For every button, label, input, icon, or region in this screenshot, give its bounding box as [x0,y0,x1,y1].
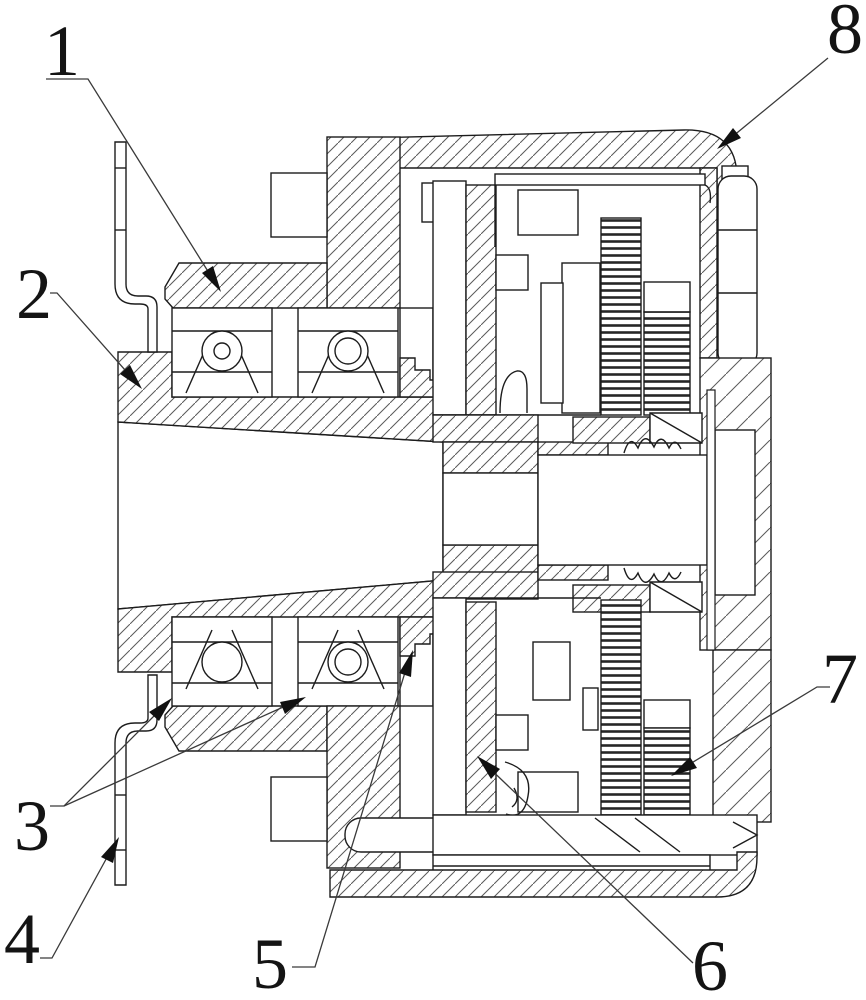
callout-1: 1 [44,11,221,292]
callout-8: 8 [717,0,863,149]
sun-gear-top [601,218,641,415]
stator-leg [466,602,496,812]
axle-boss [715,430,755,595]
lead-wire-top [500,371,527,413]
hub-end-wall-top [433,415,538,442]
cavity-left-wall [433,598,466,815]
callout-label-7: 7 [822,639,858,719]
shaft-body [538,455,707,565]
shaft-step [707,390,715,650]
end-cover [718,176,757,366]
bearing-ball [202,642,242,682]
motor-cavity-bottom [433,598,690,815]
carrier-block [562,263,600,413]
callout-label-2: 2 [16,254,52,334]
shaft-neck [443,473,538,545]
lock-nut-bottom [165,706,327,751]
callout-label-8: 8 [827,0,863,69]
shaft-collar-top [443,442,538,473]
spring-washer-bottom [624,568,681,582]
carrier-block [533,642,570,700]
callout-label-3: 3 [14,786,50,866]
gear-spacer [644,282,690,312]
left-wall-notch [271,173,327,237]
motor-cavity-top [433,174,710,415]
leader-line-1 [46,79,219,289]
callout-label-4: 4 [4,899,40,979]
shaft-shoulder-bottom [538,565,608,580]
bearing-bottom-left [172,617,272,706]
gear-spacer [644,700,690,728]
figure-canvas: 1 2 3 4 5 6 [0,0,866,1000]
planet-gear-top [644,312,690,415]
hub-end-wall-bottom [433,572,538,599]
bearing-top-right [298,308,398,397]
leader-line-8 [721,58,828,146]
sun-gear-bottom [601,600,641,815]
pcb-bar [495,174,705,185]
stator-leg [466,185,496,415]
bracket-plate-top [115,142,157,352]
bearing-bottom-right [298,617,398,706]
lock-nut-top [165,263,327,308]
callout-label-1: 1 [44,11,80,91]
assembly-section [115,130,771,897]
patent-figure-drawing: 1 2 3 4 5 6 [0,0,866,1000]
cavity-left-wall [433,181,466,415]
callout-label-6: 6 [692,926,728,1000]
housing-left-wall [327,137,400,308]
right-lower-block [713,650,771,822]
shaft-shoulder-top [538,442,608,455]
housing-right-wall [700,168,717,358]
magnet-bar [541,283,563,403]
screw-rod [433,815,757,855]
stator-step [496,715,528,750]
left-wall-notch-bottom [271,777,327,841]
stator-step [496,255,528,290]
bearing-top-left [172,308,272,397]
hub-tapered-bore [118,422,443,609]
magnet-bar [583,688,598,730]
winding-block [518,190,578,235]
callout-label-5: 5 [252,924,288,1000]
